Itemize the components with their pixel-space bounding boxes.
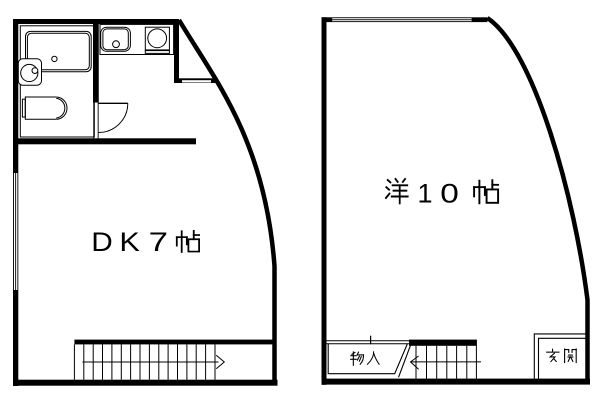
svg-text:7: 7: [149, 227, 168, 257]
svg-text:D: D: [91, 227, 113, 257]
svg-text:1: 1: [418, 178, 433, 208]
svg-text:0: 0: [440, 178, 459, 208]
svg-text:K: K: [119, 227, 140, 257]
